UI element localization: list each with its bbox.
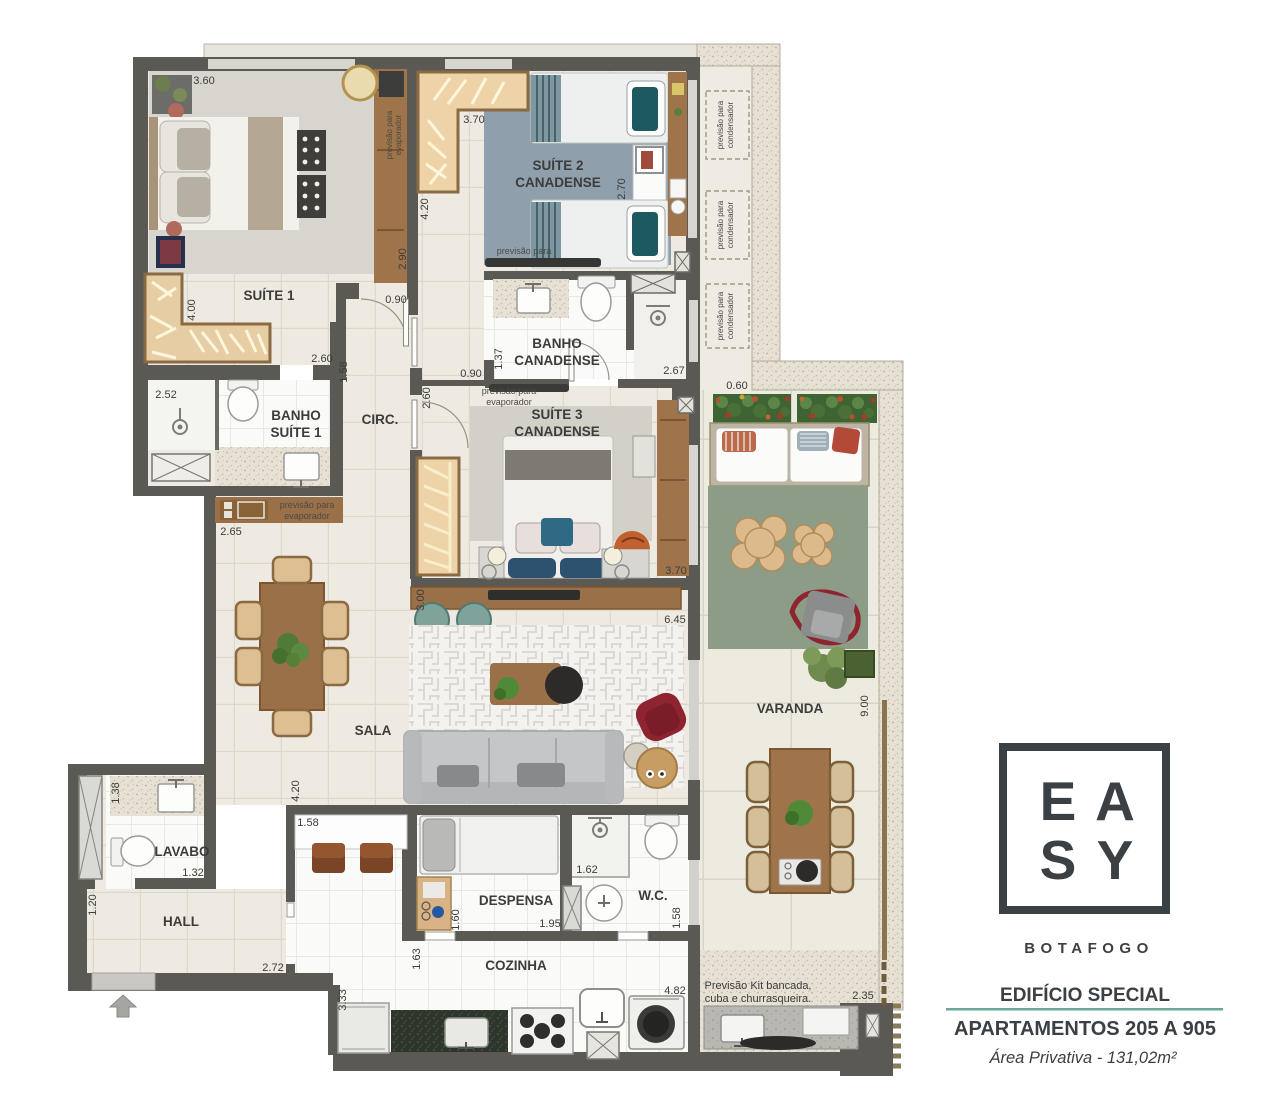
svg-text:3.70: 3.70 [665, 565, 686, 577]
svg-text:evaporador: evaporador [394, 114, 403, 155]
svg-text:4.82: 4.82 [664, 985, 685, 997]
svg-text:2.72: 2.72 [262, 962, 283, 974]
svg-text:3.33: 3.33 [337, 989, 349, 1010]
svg-text:1.58: 1.58 [338, 361, 350, 382]
svg-text:1.58: 1.58 [297, 817, 318, 829]
svg-text:A: A [1095, 770, 1135, 832]
svg-text:3.60: 3.60 [193, 75, 214, 87]
svg-text:previsão para: previsão para [716, 291, 725, 340]
svg-text:HALL: HALL [163, 914, 199, 929]
svg-text:2.70: 2.70 [616, 178, 628, 199]
svg-text:evaporador: evaporador [486, 397, 532, 407]
svg-text:condensador: condensador [726, 293, 735, 340]
svg-text:APARTAMENTOS 205 A 905: APARTAMENTOS 205 A 905 [954, 1018, 1216, 1040]
svg-text:1.60: 1.60 [450, 909, 462, 930]
svg-text:2.60: 2.60 [311, 353, 332, 365]
svg-text:4.00: 4.00 [186, 299, 198, 320]
svg-text:2.67: 2.67 [663, 365, 684, 377]
svg-text:previsão para: previsão para [497, 246, 552, 256]
svg-text:2.52: 2.52 [155, 389, 176, 401]
svg-text:SUÍTE 3: SUÍTE 3 [531, 407, 583, 422]
svg-text:S: S [1040, 829, 1077, 891]
svg-text:COZINHA: COZINHA [485, 958, 547, 973]
svg-text:condensador: condensador [726, 202, 735, 249]
svg-text:SUÍTE 1: SUÍTE 1 [270, 425, 322, 440]
svg-text:4.20: 4.20 [290, 780, 302, 801]
svg-text:0.60: 0.60 [726, 380, 747, 392]
svg-text:BANHO: BANHO [271, 408, 321, 423]
svg-text:LAVABO: LAVABO [155, 844, 210, 859]
svg-text:6.45: 6.45 [664, 614, 685, 626]
svg-text:1.63: 1.63 [411, 948, 423, 969]
svg-text:previsão para: previsão para [280, 500, 335, 510]
svg-text:Previsão Kit bancada,: Previsão Kit bancada, [704, 980, 811, 992]
svg-text:previsão para: previsão para [385, 110, 394, 159]
svg-text:Área Privativa - 131,02m²: Área Privativa - 131,02m² [988, 1048, 1177, 1067]
svg-text:CANADENSE: CANADENSE [514, 424, 600, 439]
svg-text:SUÍTE 1: SUÍTE 1 [243, 288, 295, 303]
svg-text:previsão para: previsão para [716, 100, 725, 149]
svg-text:0.90: 0.90 [385, 294, 406, 306]
svg-text:1.62: 1.62 [576, 864, 597, 876]
svg-text:SUÍTE 2: SUÍTE 2 [532, 158, 583, 173]
svg-text:EDIFÍCIO SPECIAL: EDIFÍCIO SPECIAL [1000, 984, 1170, 1006]
svg-text:1.37: 1.37 [493, 348, 505, 369]
svg-text:3.70: 3.70 [463, 114, 484, 126]
svg-text:2.35: 2.35 [852, 990, 873, 1002]
svg-text:4.20: 4.20 [419, 198, 431, 219]
svg-text:CANADENSE: CANADENSE [515, 175, 601, 190]
svg-text:0.90: 0.90 [460, 368, 481, 380]
svg-text:1.95: 1.95 [539, 918, 560, 930]
svg-text:1.38: 1.38 [110, 782, 122, 803]
svg-text:BOTAFOGO: BOTAFOGO [1024, 940, 1154, 957]
svg-text:evaporador: evaporador [284, 511, 330, 521]
svg-text:BANHO: BANHO [532, 336, 582, 351]
svg-text:previsão para: previsão para [716, 200, 725, 249]
svg-text:DESPENSA: DESPENSA [479, 893, 554, 908]
svg-text:3.00: 3.00 [415, 589, 427, 610]
svg-text:1.20: 1.20 [87, 894, 99, 915]
svg-text:CANADENSE: CANADENSE [514, 353, 600, 368]
svg-text:cuba e churrasqueira.: cuba e churrasqueira. [705, 993, 811, 1005]
svg-text:SALA: SALA [355, 723, 392, 738]
svg-text:2.65: 2.65 [220, 526, 241, 538]
svg-text:VARANDA: VARANDA [757, 701, 824, 716]
svg-text:CIRC.: CIRC. [362, 412, 399, 427]
svg-text:E: E [1040, 770, 1077, 832]
svg-text:condensador: condensador [726, 102, 735, 149]
svg-text:previsão para: previsão para [482, 386, 537, 396]
svg-text:9.00: 9.00 [859, 695, 871, 716]
svg-text:2.90: 2.90 [397, 248, 409, 269]
svg-text:1.32: 1.32 [182, 867, 203, 879]
svg-text:Y: Y [1097, 829, 1134, 891]
svg-text:1.58: 1.58 [671, 907, 683, 928]
svg-text:W.C.: W.C. [638, 888, 667, 903]
svg-text:2.60: 2.60 [421, 387, 433, 408]
